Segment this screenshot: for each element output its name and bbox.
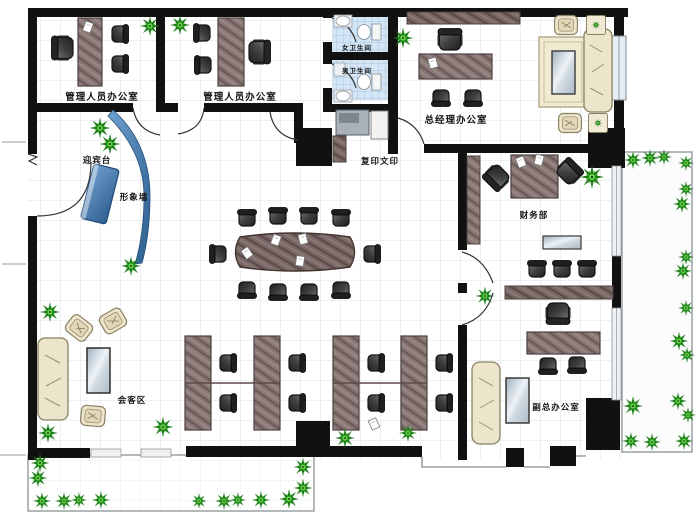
counter [467, 156, 480, 244]
sink [336, 91, 350, 101]
plant-icon [90, 118, 111, 139]
chair [289, 394, 306, 413]
plant-icon [71, 492, 87, 508]
plant-icon [191, 493, 207, 509]
room-label-office-admin-2: 管理人员办公室 [203, 91, 277, 103]
plant-icon [279, 489, 299, 509]
plant-icon [643, 433, 661, 451]
garden-strip [28, 455, 314, 511]
room-label-office-admin-1: 管理人员办公室 [65, 91, 139, 103]
toilet [358, 75, 371, 90]
chair [112, 55, 129, 74]
chair [300, 208, 319, 225]
side-table [587, 16, 606, 35]
pillar [586, 398, 620, 450]
armchair [555, 16, 578, 35]
chair [464, 90, 483, 107]
plant-icon [153, 417, 174, 438]
chair [112, 25, 129, 44]
room-label-reception: 迎宾台 [83, 155, 112, 165]
chair [368, 394, 385, 413]
credenza [407, 12, 520, 24]
chair [220, 354, 237, 373]
plant-icon [670, 332, 689, 351]
plant-icon [55, 492, 73, 510]
plant-icon [580, 165, 604, 189]
paper [295, 255, 304, 266]
plant-icon [669, 392, 687, 410]
plant-icon [622, 432, 640, 450]
plant-icon [673, 195, 691, 213]
sofa [584, 29, 612, 112]
armchair [80, 405, 106, 427]
plant-icon [656, 149, 672, 165]
plant-icon [100, 134, 121, 155]
plant-icon [678, 181, 694, 197]
plant-icon [624, 151, 642, 169]
plant-icon [678, 300, 694, 316]
chair [269, 208, 288, 225]
room-label-deputy-gm: 副总办公室 [532, 402, 580, 412]
plant-icon [215, 492, 233, 510]
plant-icon [641, 149, 659, 167]
room-label-guest-area: 会客区 [117, 395, 147, 405]
chair [436, 394, 453, 413]
chair [238, 282, 257, 299]
plant-icon [675, 432, 693, 450]
plant-icon [678, 249, 694, 265]
plant-icon [29, 469, 48, 488]
pillar [296, 421, 330, 448]
executive-chair [52, 36, 74, 61]
sofa [472, 362, 500, 444]
plant-icon [121, 256, 141, 276]
chair [289, 354, 306, 373]
chair [539, 358, 558, 375]
side-table [589, 114, 608, 133]
mirror [506, 378, 529, 423]
plant-icon [31, 454, 50, 473]
plant-icon [92, 491, 110, 509]
chair [553, 261, 572, 278]
plant-icon [679, 347, 695, 363]
sink [336, 16, 350, 26]
toilet-tank [372, 24, 381, 40]
chair [568, 357, 587, 374]
toilet-tank [372, 74, 381, 90]
floor-plan: 管理人员办公室 管理人员办公室 女卫生间 男卫生间 总经理办公室 复印文印 [0, 0, 700, 517]
room-label-gm-office: 总经理办公室 [424, 114, 487, 126]
pillar [588, 128, 625, 168]
copier-top [339, 113, 359, 123]
plant-icon [393, 28, 414, 49]
plant-icon [230, 492, 246, 508]
desk [505, 286, 613, 299]
desk [218, 18, 244, 86]
chair [220, 394, 237, 413]
plant-icon [399, 424, 417, 442]
plant-icon [680, 407, 696, 423]
plant-icon [294, 479, 313, 498]
glass-table [543, 236, 581, 249]
room-label-finance: 财务部 [519, 210, 549, 220]
plant-icon [140, 16, 160, 36]
chair [578, 261, 597, 278]
desk [527, 332, 600, 354]
plant-icon [476, 287, 495, 306]
executive-chair [249, 40, 271, 65]
floor-plan-svg: 管理人员办公室 管理人员办公室 女卫生间 男卫生间 总经理办公室 复印文印 [0, 0, 700, 517]
plant-icon [33, 492, 51, 510]
chair [269, 284, 288, 301]
chair [332, 282, 351, 299]
chair [195, 56, 212, 75]
plant-icon [623, 396, 643, 416]
room-label-image-wall: 形象墙 [120, 192, 149, 202]
sofa [38, 338, 68, 420]
plant-icon [674, 262, 692, 280]
cabinet [371, 111, 388, 139]
plant-icon [170, 15, 190, 35]
chair [300, 284, 319, 301]
plant-icon [294, 458, 313, 477]
chair [432, 90, 451, 107]
plant-icon [40, 302, 60, 322]
plant-icon [38, 423, 58, 443]
chair [368, 354, 385, 373]
window [612, 166, 621, 256]
chair [364, 245, 381, 264]
window [612, 308, 621, 400]
room-label-restroom-women: 女卫生间 [342, 43, 372, 52]
plant-icon [335, 428, 355, 448]
chair [238, 210, 257, 227]
cabinet-wood [333, 136, 346, 162]
plant-icon [252, 491, 270, 509]
pillar [296, 128, 332, 166]
executive-chair [438, 29, 463, 51]
chair [210, 245, 227, 264]
coffee-table [552, 51, 575, 94]
chair [332, 210, 351, 227]
window [612, 36, 626, 100]
chair [528, 261, 547, 278]
chair [194, 24, 211, 43]
room-label-copy-print: 复印文印 [360, 156, 399, 166]
coffee-table [87, 348, 110, 393]
room-label-restroom-men: 男卫生间 [341, 66, 372, 75]
chair [436, 354, 453, 373]
executive-chair [546, 303, 571, 325]
armchair [559, 114, 582, 133]
plant-icon [678, 155, 694, 171]
toilet [358, 25, 371, 40]
